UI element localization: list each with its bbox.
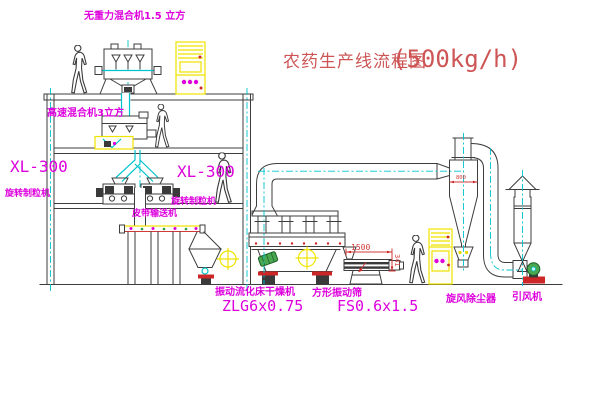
label-fan: 引风机 — [512, 293, 542, 303]
label-screen-model: FS0.6x1.5 — [337, 299, 418, 314]
person-icon — [410, 235, 425, 283]
label-dryer-model: ZLG6x0.75 — [222, 299, 303, 314]
label-cyclone: 旋风除尘器 — [446, 295, 496, 305]
dim-cyclone: 800 — [456, 176, 466, 182]
person-icon — [155, 104, 168, 147]
person-icon — [72, 45, 87, 93]
outlet-pipe — [471, 144, 527, 279]
drop-chute — [135, 188, 146, 226]
top-mixer-machine — [95, 44, 161, 118]
dim-screen-height: 341 — [393, 254, 400, 267]
control-cabinet-roof — [176, 42, 205, 94]
diagram-capacity: (500kg/h) — [392, 47, 522, 71]
label-floor2-mixer: 高速混合机3立方 — [47, 109, 124, 119]
y-chute — [112, 150, 163, 184]
fluid-bed-dryer — [217, 211, 345, 284]
cyclone-separator — [450, 133, 478, 272]
label-granulator-left-name: 旋转制粒机 — [5, 190, 50, 199]
label-belt-conveyor: 皮带输送机 — [132, 210, 177, 219]
dim-screen-length: 1500 — [351, 244, 370, 252]
granulator-left — [96, 184, 135, 204]
label-granulator-left-model: XL-300 — [10, 159, 68, 175]
control-cabinet-ground — [429, 229, 452, 284]
cad-flow-diagram: 农药生产线流程图 (500kg/h) 无重力混合机1.5 立方 高速混合机3立方… — [0, 0, 600, 403]
discharge-hopper — [189, 232, 221, 285]
label-granulator-right-model: XL-300 — [177, 164, 235, 180]
label-top-mixer: 无重力混合机1.5 立方 — [84, 12, 185, 22]
label-granulator-right-name: 旋转制粒机 — [171, 198, 216, 207]
dryer-motor — [258, 251, 278, 267]
